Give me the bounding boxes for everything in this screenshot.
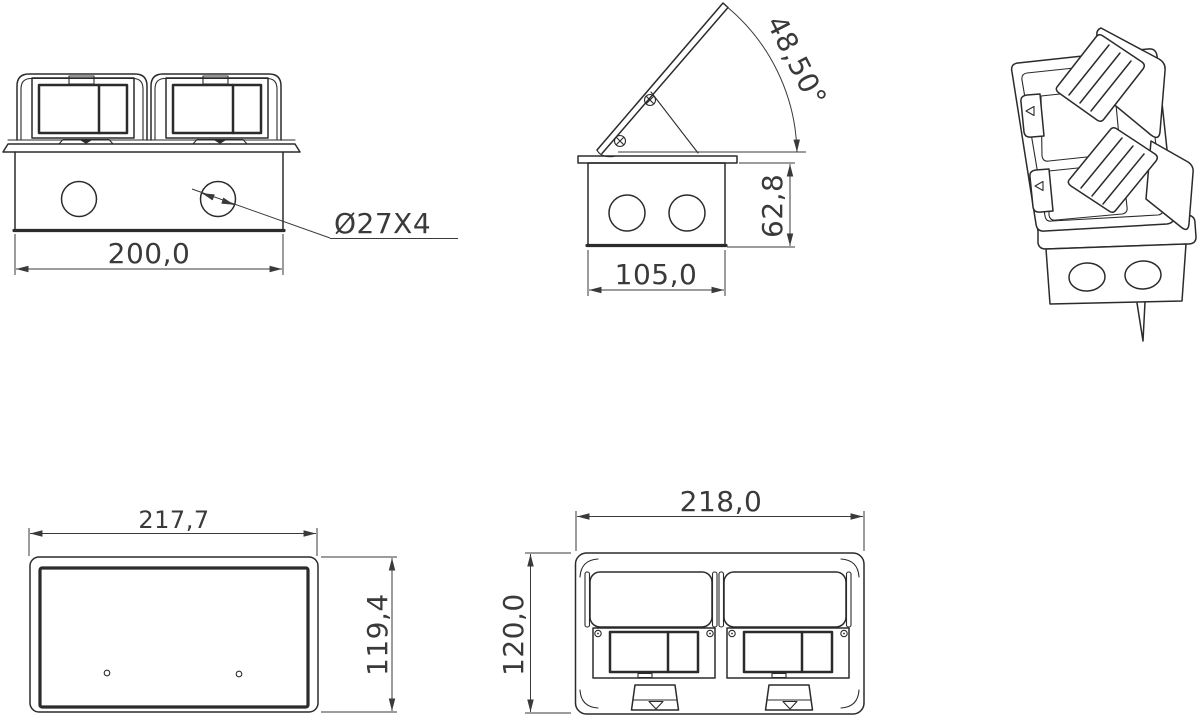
- dim-text-top-height: 120,0: [497, 593, 530, 676]
- dim-text-front-width: 200,0: [108, 237, 191, 270]
- top-view: 218,0 120,0: [497, 485, 864, 714]
- dim-back-width: 217,7: [29, 506, 317, 556]
- screw-hole: [104, 670, 110, 676]
- dim-front-width: 200,0: [15, 234, 283, 275]
- dim-text-open-angle: 48,50°: [760, 10, 834, 112]
- dim-text-back-height: 119,4: [361, 593, 394, 676]
- knockout-hole: [62, 182, 97, 217]
- dim-open-angle: 48,50°: [618, 6, 833, 152]
- knockout-hole: [609, 195, 645, 231]
- flip-lid-left: [17, 74, 147, 144]
- back-cover: [30, 557, 318, 712]
- dim-back-height: 119,4: [321, 557, 397, 712]
- dim-text-back-width: 217,7: [138, 506, 209, 534]
- cover-plate: [578, 156, 737, 163]
- latch-button: [1021, 94, 1044, 137]
- dim-side-width: 105,0: [588, 250, 725, 296]
- dim-text-side-width: 105,0: [615, 258, 698, 291]
- front-view: 200,0 Ø27X4: [3, 74, 458, 275]
- cover-plate: [3, 144, 300, 152]
- dim-text-side-height: 62,8: [756, 174, 789, 238]
- isometric-view: [1012, 28, 1196, 341]
- bottom-box: [1046, 244, 1186, 304]
- side-view: 48,50° 105,0 62,8: [578, 3, 833, 296]
- dim-top-width: 218,0: [576, 485, 864, 551]
- socket-module-right: [719, 572, 851, 710]
- drawing-svg: 200,0 Ø27X4 48,: [0, 0, 1200, 719]
- flip-lid-right: [151, 74, 281, 144]
- technical-drawing-sheet: 200,0 Ø27X4 48,: [0, 0, 1200, 719]
- back-view: 217,7 119,4: [29, 506, 397, 712]
- dim-text-top-width: 218,0: [680, 485, 763, 518]
- open-lid: [597, 3, 728, 157]
- socket-module-left: [585, 572, 717, 710]
- dim-side-height: 62,8: [727, 163, 795, 247]
- knockout-hole: [669, 195, 705, 231]
- ground-pin: [1137, 302, 1145, 341]
- top-frame: [576, 553, 865, 714]
- screw-hole: [236, 671, 242, 677]
- leader-hole-callout: Ø27X4: [192, 189, 458, 240]
- dim-top-height: 120,0: [497, 553, 571, 713]
- latch-button: [1030, 169, 1053, 212]
- dim-text-hole-callout: Ø27X4: [334, 207, 431, 240]
- knockout-hole: [201, 182, 236, 217]
